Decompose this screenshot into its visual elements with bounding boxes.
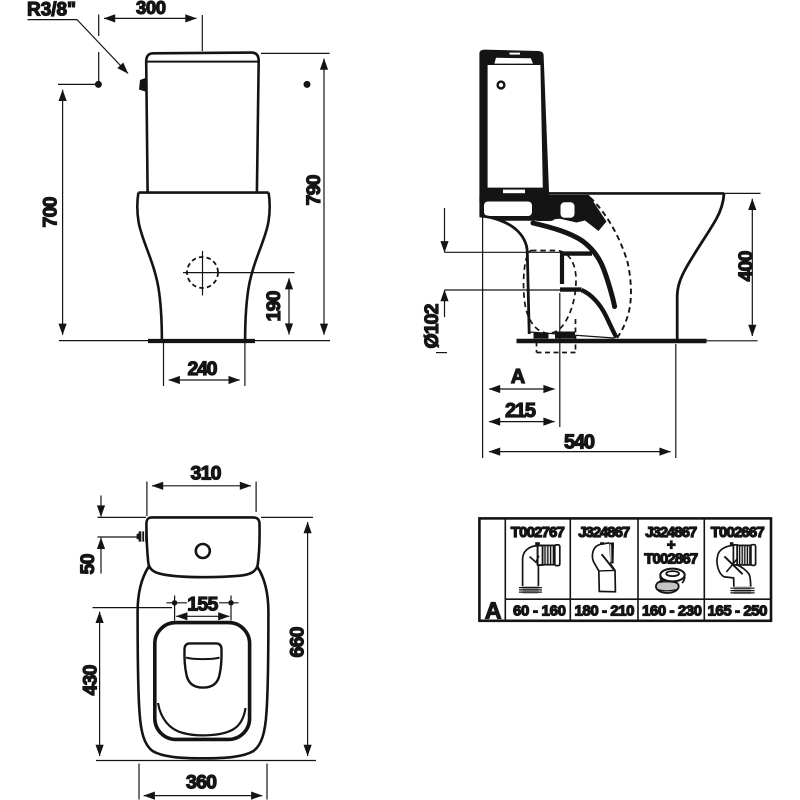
- svg-text:165 - 250: 165 - 250: [708, 603, 768, 620]
- svg-text:R3/8": R3/8": [27, 0, 76, 21]
- svg-text:Ø102: Ø102: [421, 303, 443, 348]
- svg-text:160 - 230: 160 - 230: [642, 603, 702, 620]
- svg-text:T002767: T002767: [511, 524, 565, 541]
- svg-text:360: 360: [186, 772, 217, 794]
- svg-text:A: A: [511, 366, 525, 388]
- svg-text:50: 50: [77, 553, 99, 574]
- svg-text:155: 155: [187, 593, 218, 615]
- svg-text:J324867: J324867: [578, 524, 630, 541]
- svg-text:190: 190: [263, 290, 285, 321]
- svg-text:T002667: T002667: [711, 524, 765, 541]
- svg-text:430: 430: [80, 664, 102, 695]
- svg-text:400: 400: [735, 250, 757, 281]
- svg-text:660: 660: [287, 626, 309, 657]
- svg-text:180 - 210: 180 - 210: [575, 603, 635, 620]
- svg-text:A: A: [485, 598, 502, 624]
- svg-text:300: 300: [136, 0, 166, 18]
- svg-text:310: 310: [191, 463, 222, 485]
- svg-text:T002867: T002867: [644, 551, 698, 568]
- svg-text:240: 240: [188, 358, 218, 380]
- svg-text:60 - 160: 60 - 160: [513, 603, 566, 620]
- svg-text:540: 540: [564, 432, 595, 454]
- svg-text:215: 215: [505, 400, 536, 422]
- svg-text:700: 700: [40, 196, 62, 227]
- svg-text:790: 790: [303, 174, 325, 205]
